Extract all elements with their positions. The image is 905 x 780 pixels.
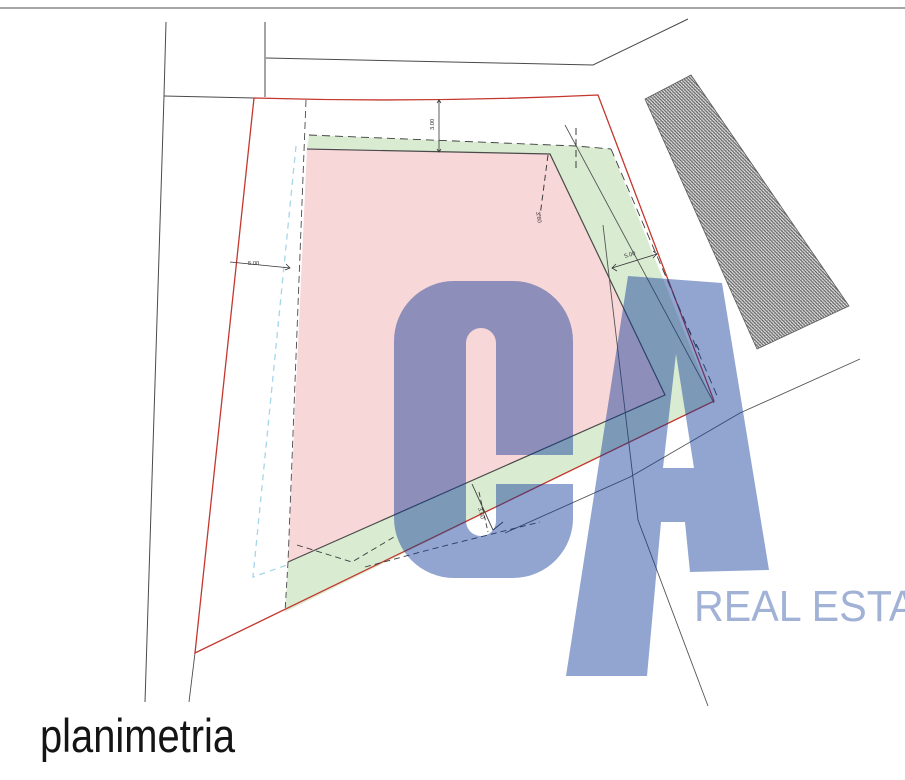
svg-text:REAL ESTATE: REAL ESTATE [694,582,905,631]
svg-text:planimetria: planimetria [40,709,236,762]
svg-text:5.00: 5.00 [248,261,259,267]
svg-text:3.00: 3.00 [430,119,436,130]
